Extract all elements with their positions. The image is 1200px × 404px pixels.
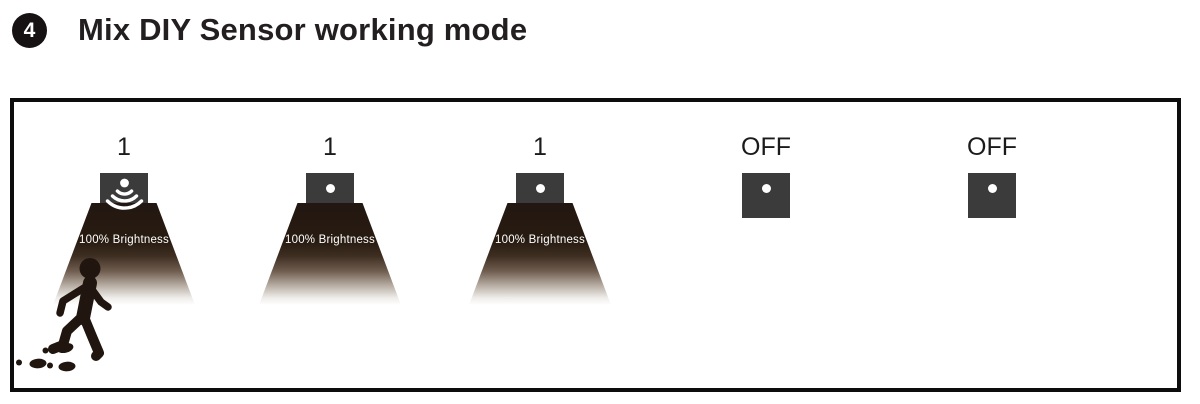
diagram-panel: 1 100% Brightness — [10, 98, 1181, 392]
brightness-label: 100% Brightness — [44, 234, 204, 246]
mode-label: 1 — [250, 135, 410, 160]
sensor-unit-3: 1 100% Brightness — [460, 131, 620, 386]
sensor-dot-icon — [536, 184, 545, 193]
manual-page: 4 Mix DIY Sensor working mode 1 100% Bri… — [0, 0, 1200, 404]
sensor-unit-1: 1 100% Brightness — [44, 131, 204, 386]
sensor-unit-5: OFF — [912, 131, 1072, 386]
sensor-dot-icon — [988, 184, 997, 193]
sensor-dot-icon — [326, 184, 335, 193]
sensor-fixture — [742, 173, 790, 218]
step-number: 4 — [24, 19, 36, 43]
page-title: Mix DIY Sensor working mode — [78, 12, 527, 48]
light-cone — [259, 203, 401, 305]
sensor-fixture — [968, 173, 1016, 218]
light-cone — [53, 203, 195, 305]
sensor-unit-2: 1 100% Brightness — [250, 131, 410, 386]
mode-label: OFF — [686, 135, 846, 160]
mode-label: 1 — [460, 135, 620, 160]
mode-label: OFF — [912, 135, 1072, 160]
step-number-badge: 4 — [12, 13, 47, 48]
light-cone — [469, 203, 611, 305]
sensor-dot-icon — [762, 184, 771, 193]
sensor-unit-4: OFF — [686, 131, 846, 386]
brightness-label: 100% Brightness — [460, 234, 620, 246]
footprints-icon — [16, 342, 76, 372]
brightness-label: 100% Brightness — [250, 234, 410, 246]
mode-label: 1 — [44, 135, 204, 160]
